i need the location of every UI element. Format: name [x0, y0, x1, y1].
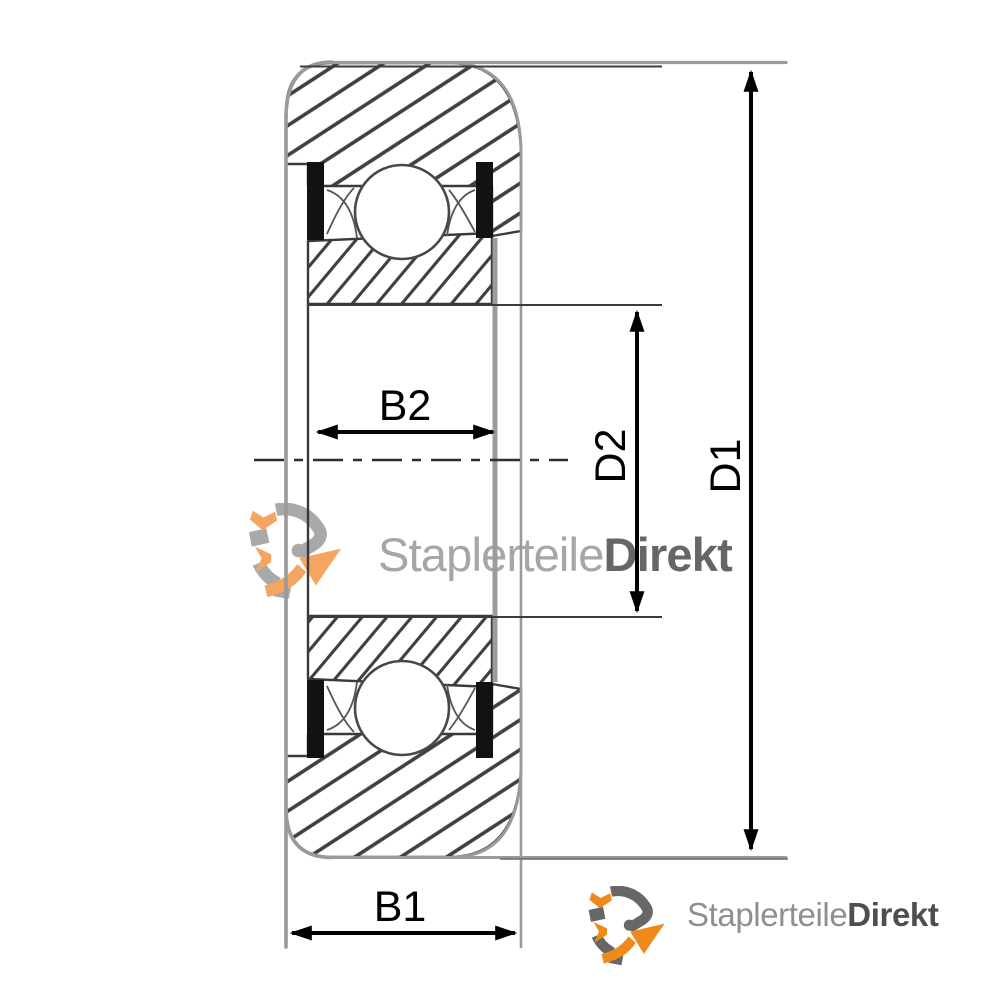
watermark-text: StaplerteileDirekt: [378, 528, 733, 581]
watermark: StaplerteileDirekt: [249, 509, 733, 599]
footer-logo-text-bold: Direkt: [847, 896, 939, 933]
watermark-gear-arrows-icon: [249, 509, 341, 599]
watermark-text-normal: Staplerteile: [378, 528, 604, 581]
technical-drawing-canvas: StaplerteileDirekt: [0, 0, 1000, 1000]
dimension-label-b1: B1: [374, 883, 427, 931]
ball-top: [355, 165, 449, 259]
watermark-text-bold: Direkt: [604, 528, 734, 581]
dimension-label-d1: D1: [702, 439, 750, 494]
footer-logo: StaplerteileDirekt: [589, 891, 939, 965]
ball-bottom: [355, 661, 449, 755]
dimension-label-d2: D2: [587, 429, 635, 484]
dimension-label-b2: B2: [379, 382, 432, 430]
footer-logo-text: StaplerteileDirekt: [687, 896, 939, 933]
bearing-dimension-diagram: StaplerteileDirekt: [0, 0, 1000, 1000]
footer-logo-text-normal: Staplerteile: [687, 896, 847, 933]
footer-gear-arrows-icon: [589, 891, 665, 965]
